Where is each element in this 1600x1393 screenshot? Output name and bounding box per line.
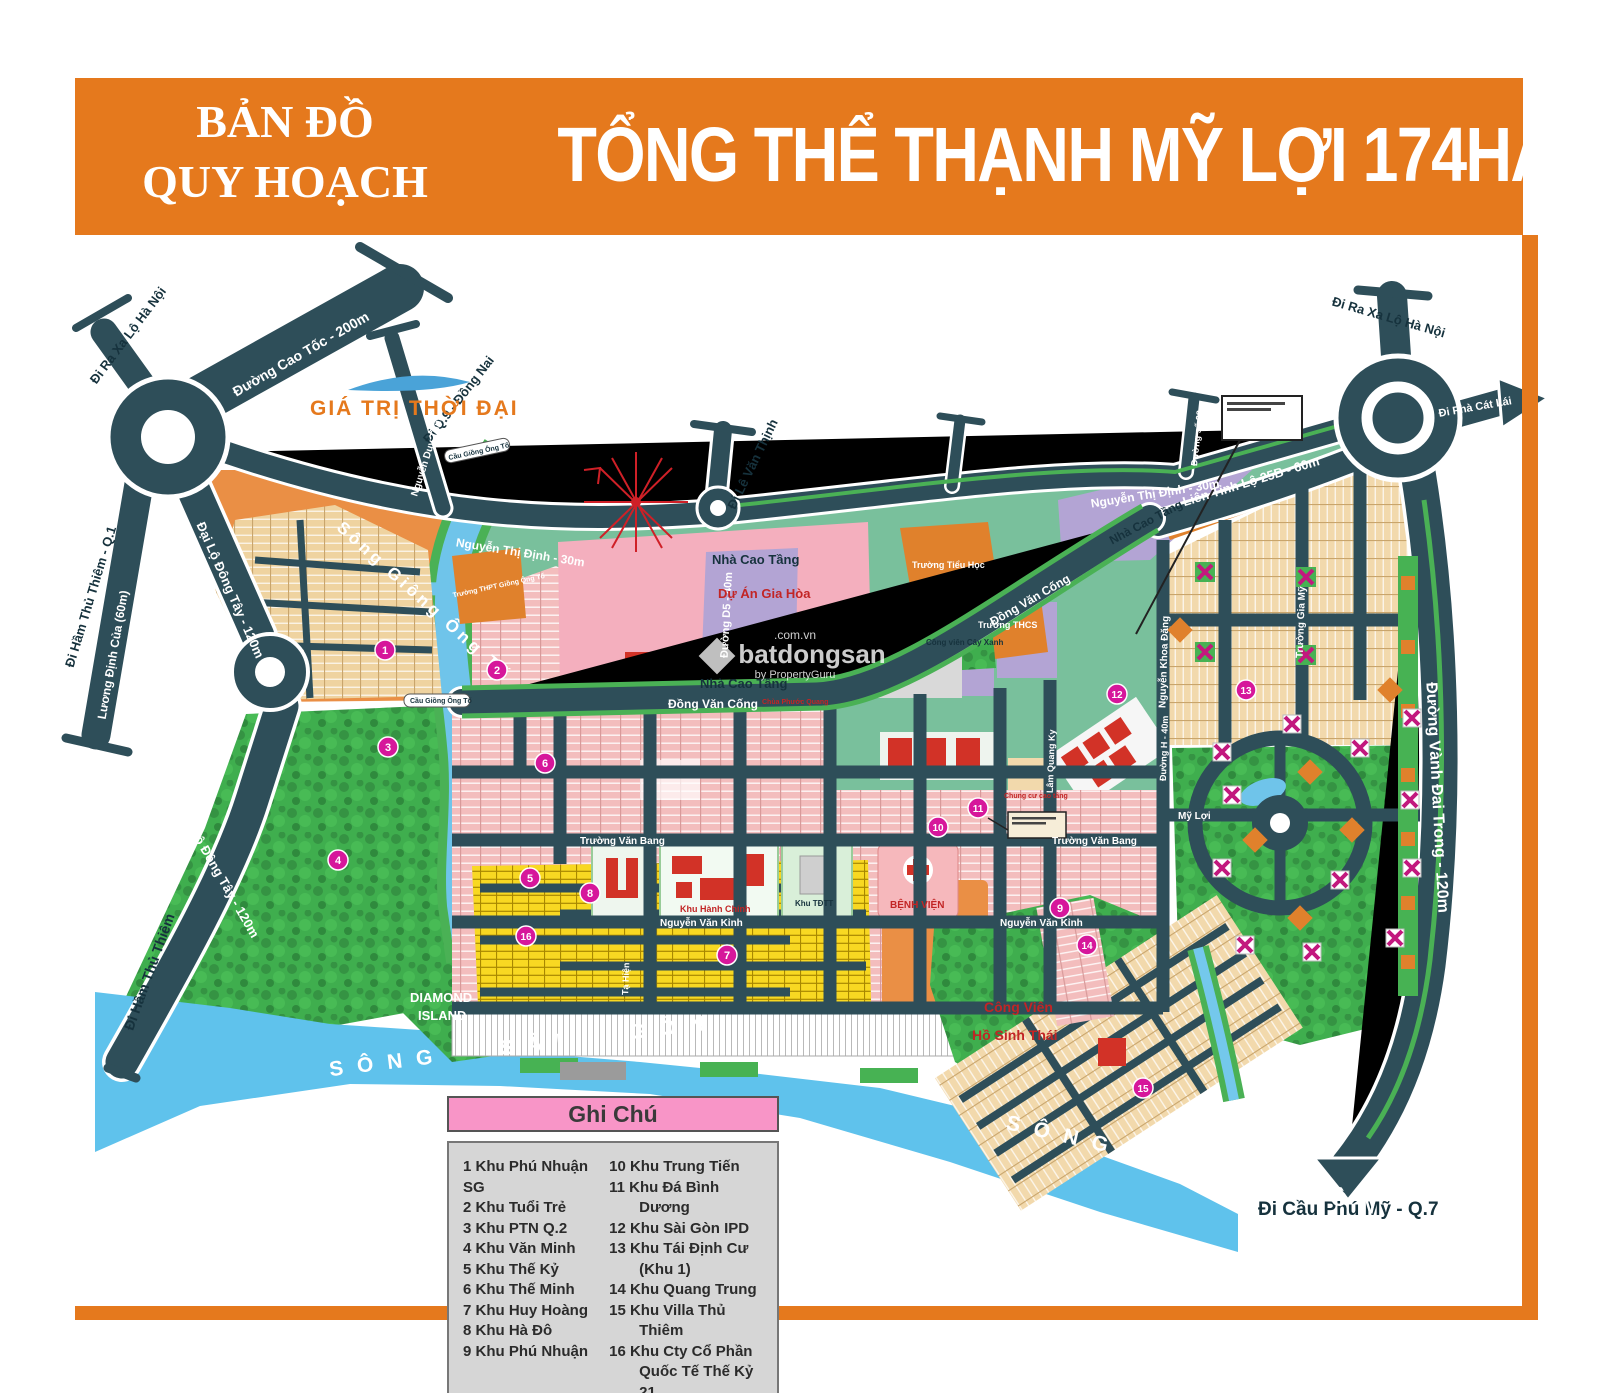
- label-thcs: Trường THCS: [978, 620, 1037, 630]
- legend-item: 1 Khu Phú Nhuận SG: [463, 1157, 609, 1198]
- watermark-brand: batdongsan: [738, 639, 885, 669]
- legend-body: 1 Khu Phú Nhuận SG 2 Khu Tuổi Trẻ 3 Khu …: [447, 1141, 779, 1393]
- label-dvc-1: Đồng Văn Cống: [668, 697, 758, 711]
- quay-hatch: [560, 1062, 626, 1080]
- legend-column-left: 1 Khu Phú Nhuận SG 2 Khu Tuổi Trẻ 3 Khu …: [463, 1157, 609, 1393]
- svg-text:12: 12: [1111, 690, 1123, 701]
- svg-text:1: 1: [382, 645, 388, 657]
- label-nvk-2: Nguyễn Văn Kỉnh: [1000, 916, 1083, 929]
- label-tieu-hoc: Trường Tiểu Học: [912, 560, 985, 570]
- border-right: [1522, 235, 1538, 1320]
- border-bottom: [75, 1306, 1538, 1320]
- beige-pocket-a: [1168, 695, 1226, 741]
- svg-text:11: 11: [973, 804, 984, 815]
- svg-text:3: 3: [385, 742, 391, 754]
- svg-text:8: 8: [587, 888, 593, 900]
- label-chua: Chùa Phước Quang: [762, 699, 828, 706]
- svg-text:5: 5: [527, 873, 533, 885]
- legend-item: 9 Khu Phú Nhuận: [463, 1342, 609, 1363]
- label-khc: Khu Hành Chính: [680, 904, 751, 914]
- legend-item: 5 Khu Thế Kỷ: [463, 1260, 609, 1281]
- svg-text:2: 2: [494, 665, 500, 677]
- svg-text:10: 10: [932, 823, 944, 834]
- logo-text: GIÁ TRỊ THỜI ĐẠI: [310, 396, 519, 420]
- legend-item: 7 Khu Huy Hoàng: [463, 1301, 609, 1322]
- legend-item: 13 Khu Tái Định Cư (Khu 1): [609, 1239, 771, 1280]
- legend-item: 3 Khu PTN Q.2: [463, 1219, 609, 1240]
- watermark: .com.vn batdongsan by PropertyGuru: [690, 628, 900, 681]
- label-nvk-1: Nguyễn Văn Kỉnh: [660, 916, 743, 929]
- planning-map-poster: Đi Ra Xa Lộ Hà Nội Đường Cao Tốc - 200m …: [0, 0, 1600, 1393]
- svg-text:6: 6: [542, 758, 548, 770]
- legend-item: 15 Khu Villa Thủ Thiêm: [609, 1301, 771, 1342]
- header-left-line1: BẢN ĐỒ: [105, 92, 465, 152]
- svg-text:16: 16: [520, 932, 532, 943]
- legend: Ghi Chú 1 Khu Phú Nhuận SG 2 Khu Tuổi Tr…: [447, 1096, 779, 1393]
- label-tvb-1: Trường Văn Bang: [580, 836, 665, 847]
- label-chung-cu: Chung cư cao tầng: [1004, 791, 1068, 800]
- watermark-logo-icon: [699, 638, 736, 675]
- label-benh-vien: BỆNH VIỆN: [890, 898, 944, 911]
- label-tvb-2: Trường Văn Bang: [1052, 836, 1137, 847]
- label-cv-1: Công Viên: [984, 999, 1053, 1015]
- header-left-title: BẢN ĐỒ QUY HOẠCH: [105, 92, 465, 212]
- legend-item: 8 Khu Hà Đô: [463, 1321, 609, 1342]
- legend-item: 14 Khu Quang Trung: [609, 1280, 771, 1301]
- label-nct-1: Nhà Cao Tầng: [712, 552, 799, 567]
- legend-item: 12 Khu Sài Gòn IPD: [609, 1219, 771, 1240]
- label-my-loi: Mỹ Lợi: [1178, 811, 1211, 822]
- watermark-sub: by PropertyGuru: [690, 669, 900, 681]
- gia-tri-thoi-dai-logo: GIÁ TRỊ THỜI ĐẠI: [310, 376, 519, 420]
- svg-text:14: 14: [1081, 941, 1093, 952]
- label-gia-hoa: Dự Án Gia Hòa: [718, 586, 811, 601]
- page-title: TỔNG THỂ THẠNH MỸ LỢI 174HA: [557, 100, 1422, 210]
- legend-item: 6 Khu Thế Minh: [463, 1280, 609, 1301]
- svg-text:13: 13: [1240, 686, 1252, 697]
- legend-item: 4 Khu Văn Minh: [463, 1239, 609, 1260]
- poster-header: BẢN ĐỒ QUY HOẠCH TỔNG THỂ THẠNH MỸ LỢI 1…: [75, 78, 1523, 235]
- label-diamond-2: ISLAND: [418, 1008, 466, 1023]
- label-cau-got-2: Cầu Giồng Ông Tố: [410, 696, 473, 705]
- legend-title: Ghi Chú: [447, 1096, 779, 1132]
- label-tdtt: Khu TĐTT: [795, 899, 833, 908]
- legend-column-right: 10 Khu Trung Tiến 11 Khu Đá Bình Dương 1…: [609, 1157, 771, 1393]
- label-diamond-1: DIAMOND: [410, 990, 472, 1005]
- legend-item: 16 Khu Cty Cổ Phần Quốc Tế Thế Kỷ 21: [609, 1342, 771, 1393]
- svg-text:4: 4: [335, 855, 342, 867]
- svg-text:7: 7: [724, 950, 730, 962]
- header-left-line2: QUY HOẠCH: [105, 152, 465, 212]
- label-ta-hien: Tạ Hiện: [620, 962, 631, 995]
- legend-item: 2 Khu Tuổi Trẻ: [463, 1198, 609, 1219]
- svg-text:9: 9: [1057, 903, 1063, 915]
- label-cay-xanh: Công viên Cây Xanh: [926, 638, 1003, 647]
- label-cv-2: Hồ Sinh Thái: [972, 1027, 1058, 1043]
- legend-item: 10 Khu Trung Tiến: [609, 1157, 771, 1178]
- legend-item: 11 Khu Đá Bình Dương: [609, 1178, 771, 1219]
- svg-text:15: 15: [1137, 1084, 1149, 1095]
